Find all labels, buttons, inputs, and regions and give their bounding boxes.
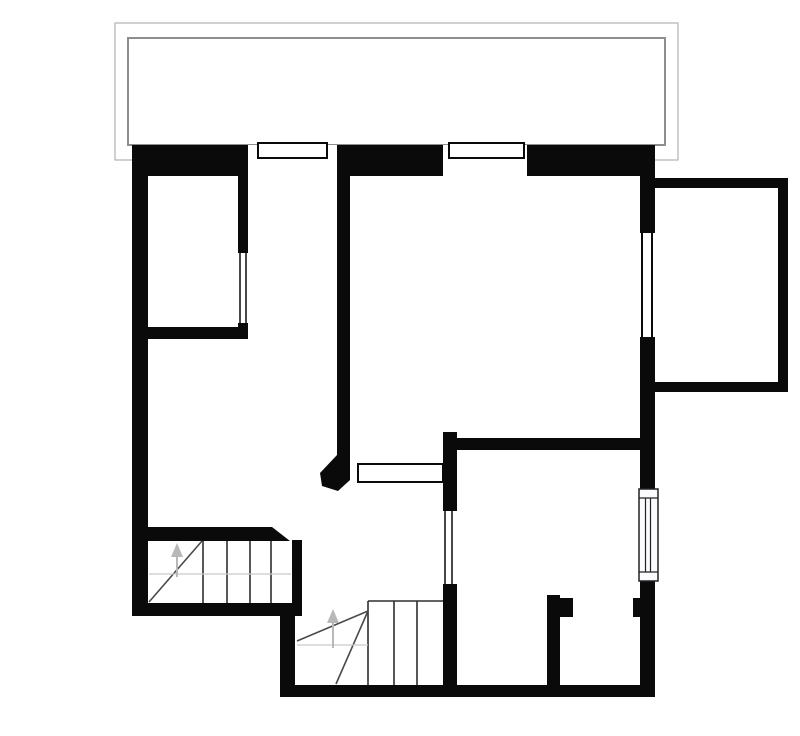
window-top1-frame: [258, 143, 327, 158]
wall-balcony-right: [778, 178, 788, 392]
wall-room2-left-lower: [443, 584, 457, 697]
wall-central-end-chamfer: [320, 455, 350, 491]
window-top2-frame: [449, 143, 524, 158]
wall-bottom: [280, 685, 655, 697]
wall-central: [337, 176, 350, 462]
terrace-outer-outline: [115, 23, 678, 160]
floor-plan-page: [0, 0, 800, 736]
wall-wc-left: [547, 595, 560, 685]
wall-left: [132, 145, 148, 616]
window-pass-frame: [358, 464, 443, 482]
stair1-up-arrow-head: [171, 543, 183, 557]
wall-right-lower: [640, 579, 655, 697]
stair2-up-arrow-head: [327, 609, 339, 623]
wall-top: [132, 145, 655, 176]
wall-stair-top-chamfer: [132, 527, 290, 541]
wall-stair-edge: [292, 540, 302, 603]
wall-room2-top: [450, 438, 640, 450]
wall-room1-right: [238, 176, 248, 253]
terrace-inner-outline: [128, 38, 665, 145]
radiator-body: [639, 489, 658, 581]
wall-room1-bottom: [132, 327, 248, 339]
wall-wc-stub-right: [633, 598, 640, 617]
wall-right-upper: [640, 176, 655, 233]
wall-wc-stub-left: [560, 598, 573, 617]
wall-room1-right-corner: [238, 323, 248, 339]
wall-balcony-top: [655, 178, 788, 188]
wall-stairs-bottom: [132, 603, 302, 616]
wall-stairbay-left: [280, 603, 295, 697]
floor-plan-svg: [0, 0, 800, 736]
wall-right-middle: [640, 337, 655, 490]
wall-balcony-bottom: [655, 382, 788, 392]
